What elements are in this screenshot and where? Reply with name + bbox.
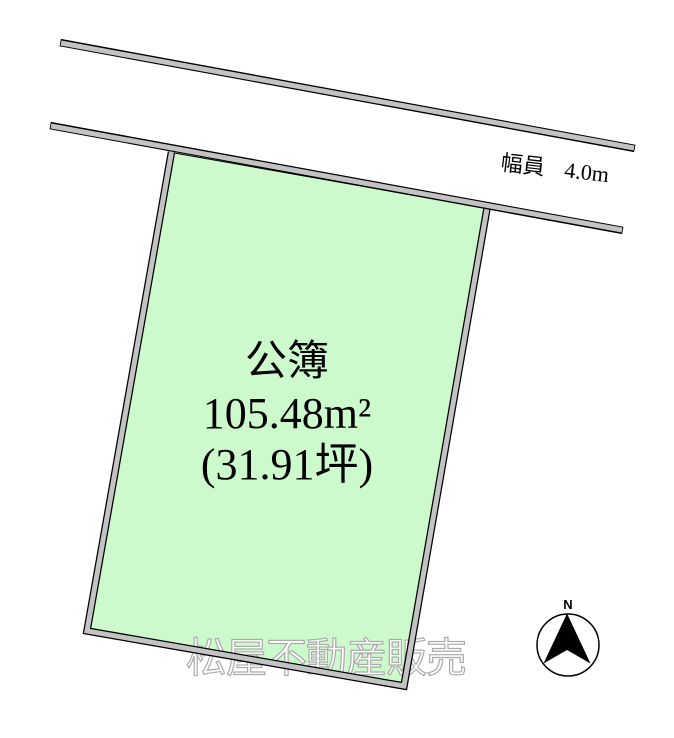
compass-north-label: N [556, 597, 580, 612]
parcel-area-sqm: 105.48m² [137, 388, 437, 439]
parcel-registry-label: 公簿 [137, 337, 437, 388]
parcel-area-tsubo: (31.91坪) [137, 439, 437, 490]
parcel-area-label: 公簿 105.48m² (31.91坪) [137, 337, 437, 490]
road-width-value: 4.0m [563, 157, 610, 187]
road-upper-edge-bar [61, 43, 634, 148]
road-width-caption: 幅員 [500, 150, 547, 180]
land-plot-diagram: 松屋不動産販売 幅員4.0m 公簿 105.48m² (31.91坪) N [0, 0, 674, 738]
road-width-gap [544, 175, 564, 177]
